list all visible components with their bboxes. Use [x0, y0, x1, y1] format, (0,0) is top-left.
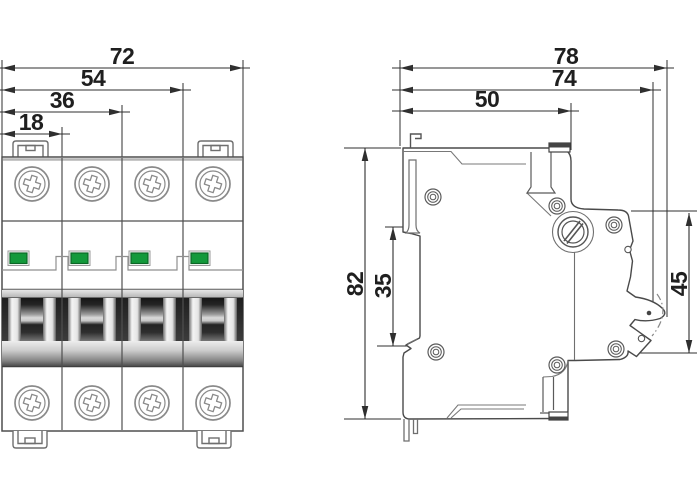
din-clip-top-right — [198, 141, 233, 157]
breaker-side-body — [403, 148, 665, 419]
din-clip-bottom-right — [197, 431, 231, 448]
toggle-handle[interactable] — [189, 298, 237, 341]
toggle-handle[interactable] — [8, 298, 56, 341]
toggle-handle[interactable] — [128, 298, 176, 341]
status-indicator-green — [69, 251, 90, 266]
status-indicator-green — [8, 251, 29, 266]
side-view: 78 74 50 82 35 45 — [342, 43, 697, 441]
dim-label-36: 36 — [50, 87, 75, 113]
dim-label-82: 82 — [342, 272, 368, 297]
dim-label-45: 45 — [666, 271, 692, 296]
dim-label-50: 50 — [475, 86, 500, 112]
slotted-screw[interactable] — [558, 217, 588, 247]
status-indicator-green — [189, 251, 210, 266]
dim-label-72: 72 — [110, 43, 135, 69]
side-bottom-clip — [404, 419, 418, 441]
din-clip-bottom-left — [13, 431, 47, 448]
breaker-drawing: 72 54 36 18 — [0, 0, 700, 500]
status-indicator-green — [129, 251, 150, 266]
front-view: 72 54 36 18 — [0, 43, 250, 448]
side-top-hook — [411, 134, 422, 148]
dim-label-54: 54 — [81, 65, 106, 91]
toggle-handle[interactable] — [68, 298, 116, 341]
technical-drawing-canvas: 72 54 36 18 — [0, 0, 700, 500]
dim-label-74: 74 — [552, 65, 577, 91]
din-clip-top-left — [13, 141, 48, 157]
dim-label-35: 35 — [370, 273, 396, 298]
dim-label-18: 18 — [19, 109, 44, 135]
